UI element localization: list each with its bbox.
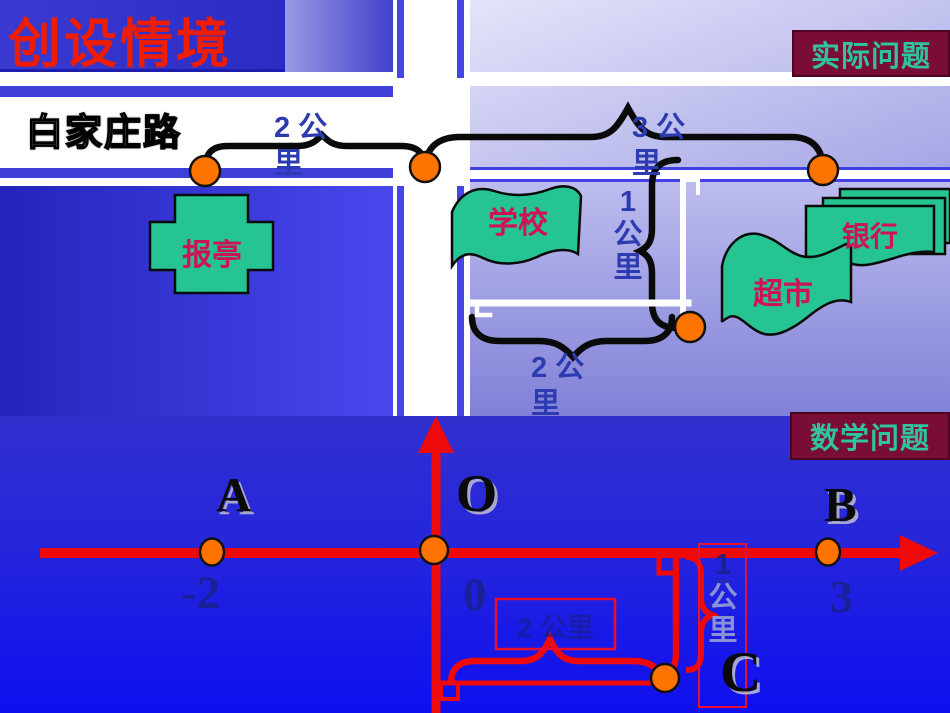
distance-label-right: 3 公 里: [632, 110, 716, 182]
hidden-answer-horizontal: 2 公里: [498, 606, 613, 645]
place-label-supermarket: 超市: [748, 269, 818, 313]
distance-label-vertical: 1 公 里: [610, 186, 646, 285]
marker-point-a: [200, 539, 224, 566]
tick-value-a: -2: [181, 566, 220, 620]
place-label-bank: 银行: [838, 215, 902, 255]
place-label-school: 学校: [482, 198, 554, 242]
distance-label-bottom: 2 公 里: [531, 350, 615, 422]
red-brace-horizontal-icon: [451, 639, 663, 683]
marker-school-dot: [410, 152, 440, 182]
distance-label-left: 2 公 里: [274, 110, 358, 182]
x-axis-arrowhead-icon: [900, 535, 938, 571]
point-label-c: C: [720, 640, 761, 705]
tick-value-o: 0: [463, 568, 487, 622]
badge-math-problem: 数学问题: [790, 412, 950, 460]
page-title: 创设情境: [8, 2, 232, 78]
marker-point-o: [420, 536, 448, 564]
badge-real-problem: 实际问题: [792, 30, 950, 77]
point-label-o: O: [456, 464, 497, 524]
marker-supermarket-dot: [675, 312, 705, 342]
marker-point-c: [651, 664, 679, 692]
y-axis-arrowhead-icon: [418, 416, 454, 453]
marker-bank-dot: [808, 155, 838, 185]
hidden-answer-vertical: 1 公 里: [702, 550, 744, 648]
point-label-a: A: [216, 466, 251, 523]
slide-canvas: 创设情境 实际问题 数学问题 白家庄路 2 公 里 3 公 里 1 公 里 2 …: [0, 0, 950, 713]
point-label-b: B: [824, 476, 857, 533]
marker-newsstand-dot: [190, 156, 220, 186]
brace-right-segment-icon: [425, 108, 823, 170]
marker-point-b: [816, 539, 840, 566]
road-name-label: 白家庄路: [26, 102, 182, 156]
place-label-newsstand: 报亭: [174, 230, 250, 274]
tick-value-b: 3: [830, 570, 853, 623]
